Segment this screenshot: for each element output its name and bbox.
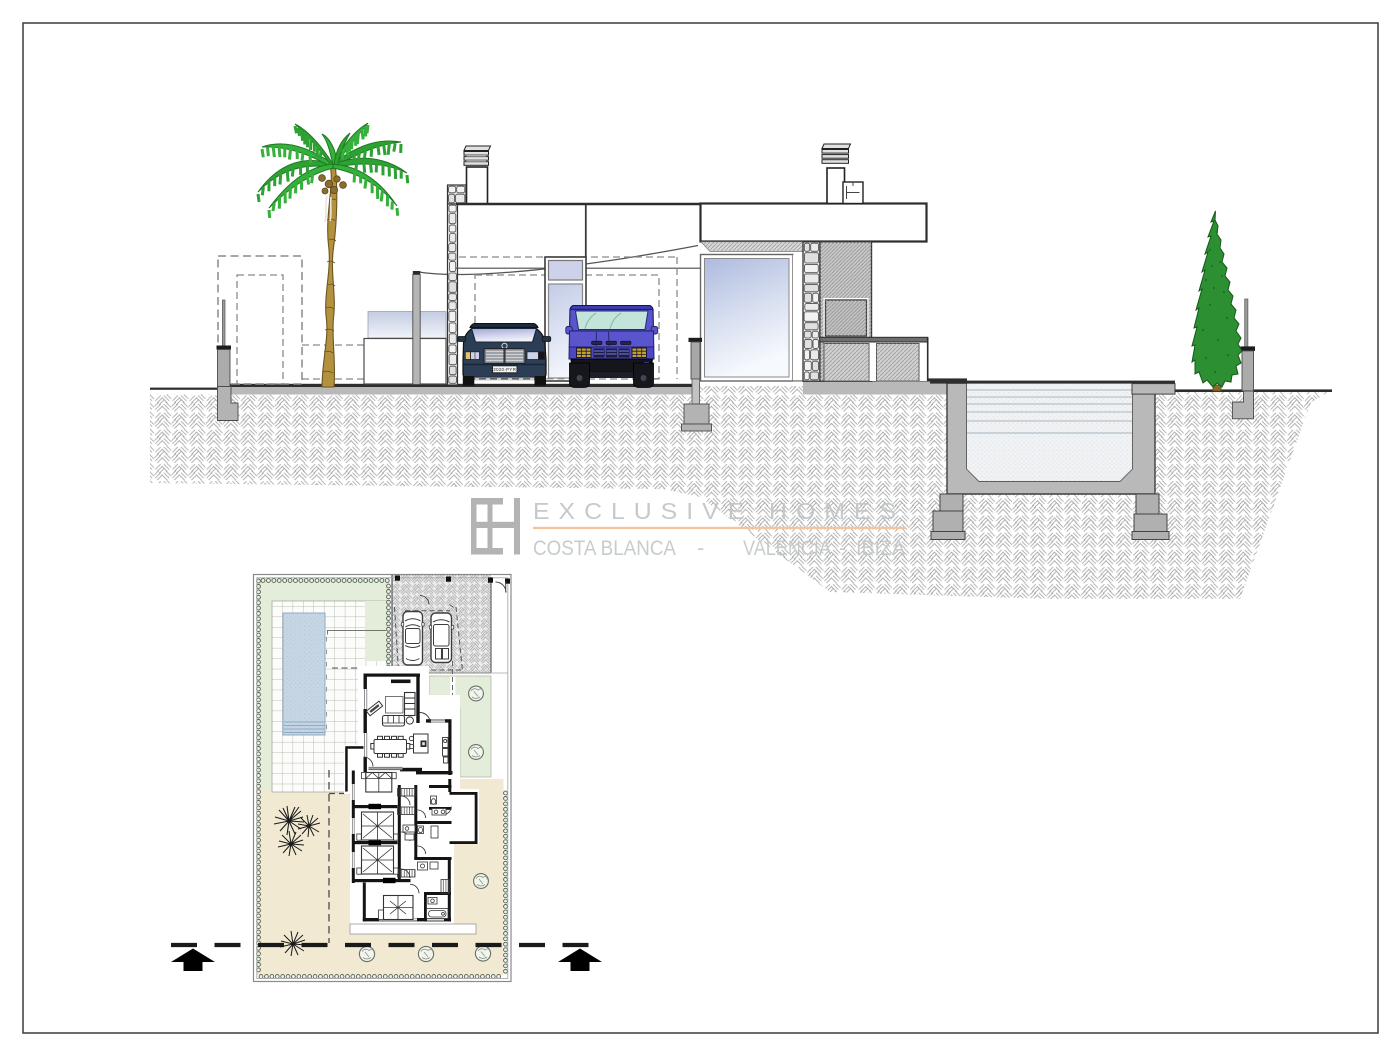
svg-text:COSTA BLANCA: COSTA BLANCA	[533, 536, 677, 560]
svg-text:EXCLUSIVE HOMES: EXCLUSIVE HOMES	[533, 498, 905, 524]
svg-text:IBIZA: IBIZA	[856, 536, 906, 560]
svg-text:-: -	[697, 536, 704, 560]
svg-text:VALENCIA: VALENCIA	[743, 536, 832, 560]
svg-text:-: -	[839, 536, 846, 560]
svg-text:2020-PYR: 2020-PYR	[493, 367, 516, 372]
